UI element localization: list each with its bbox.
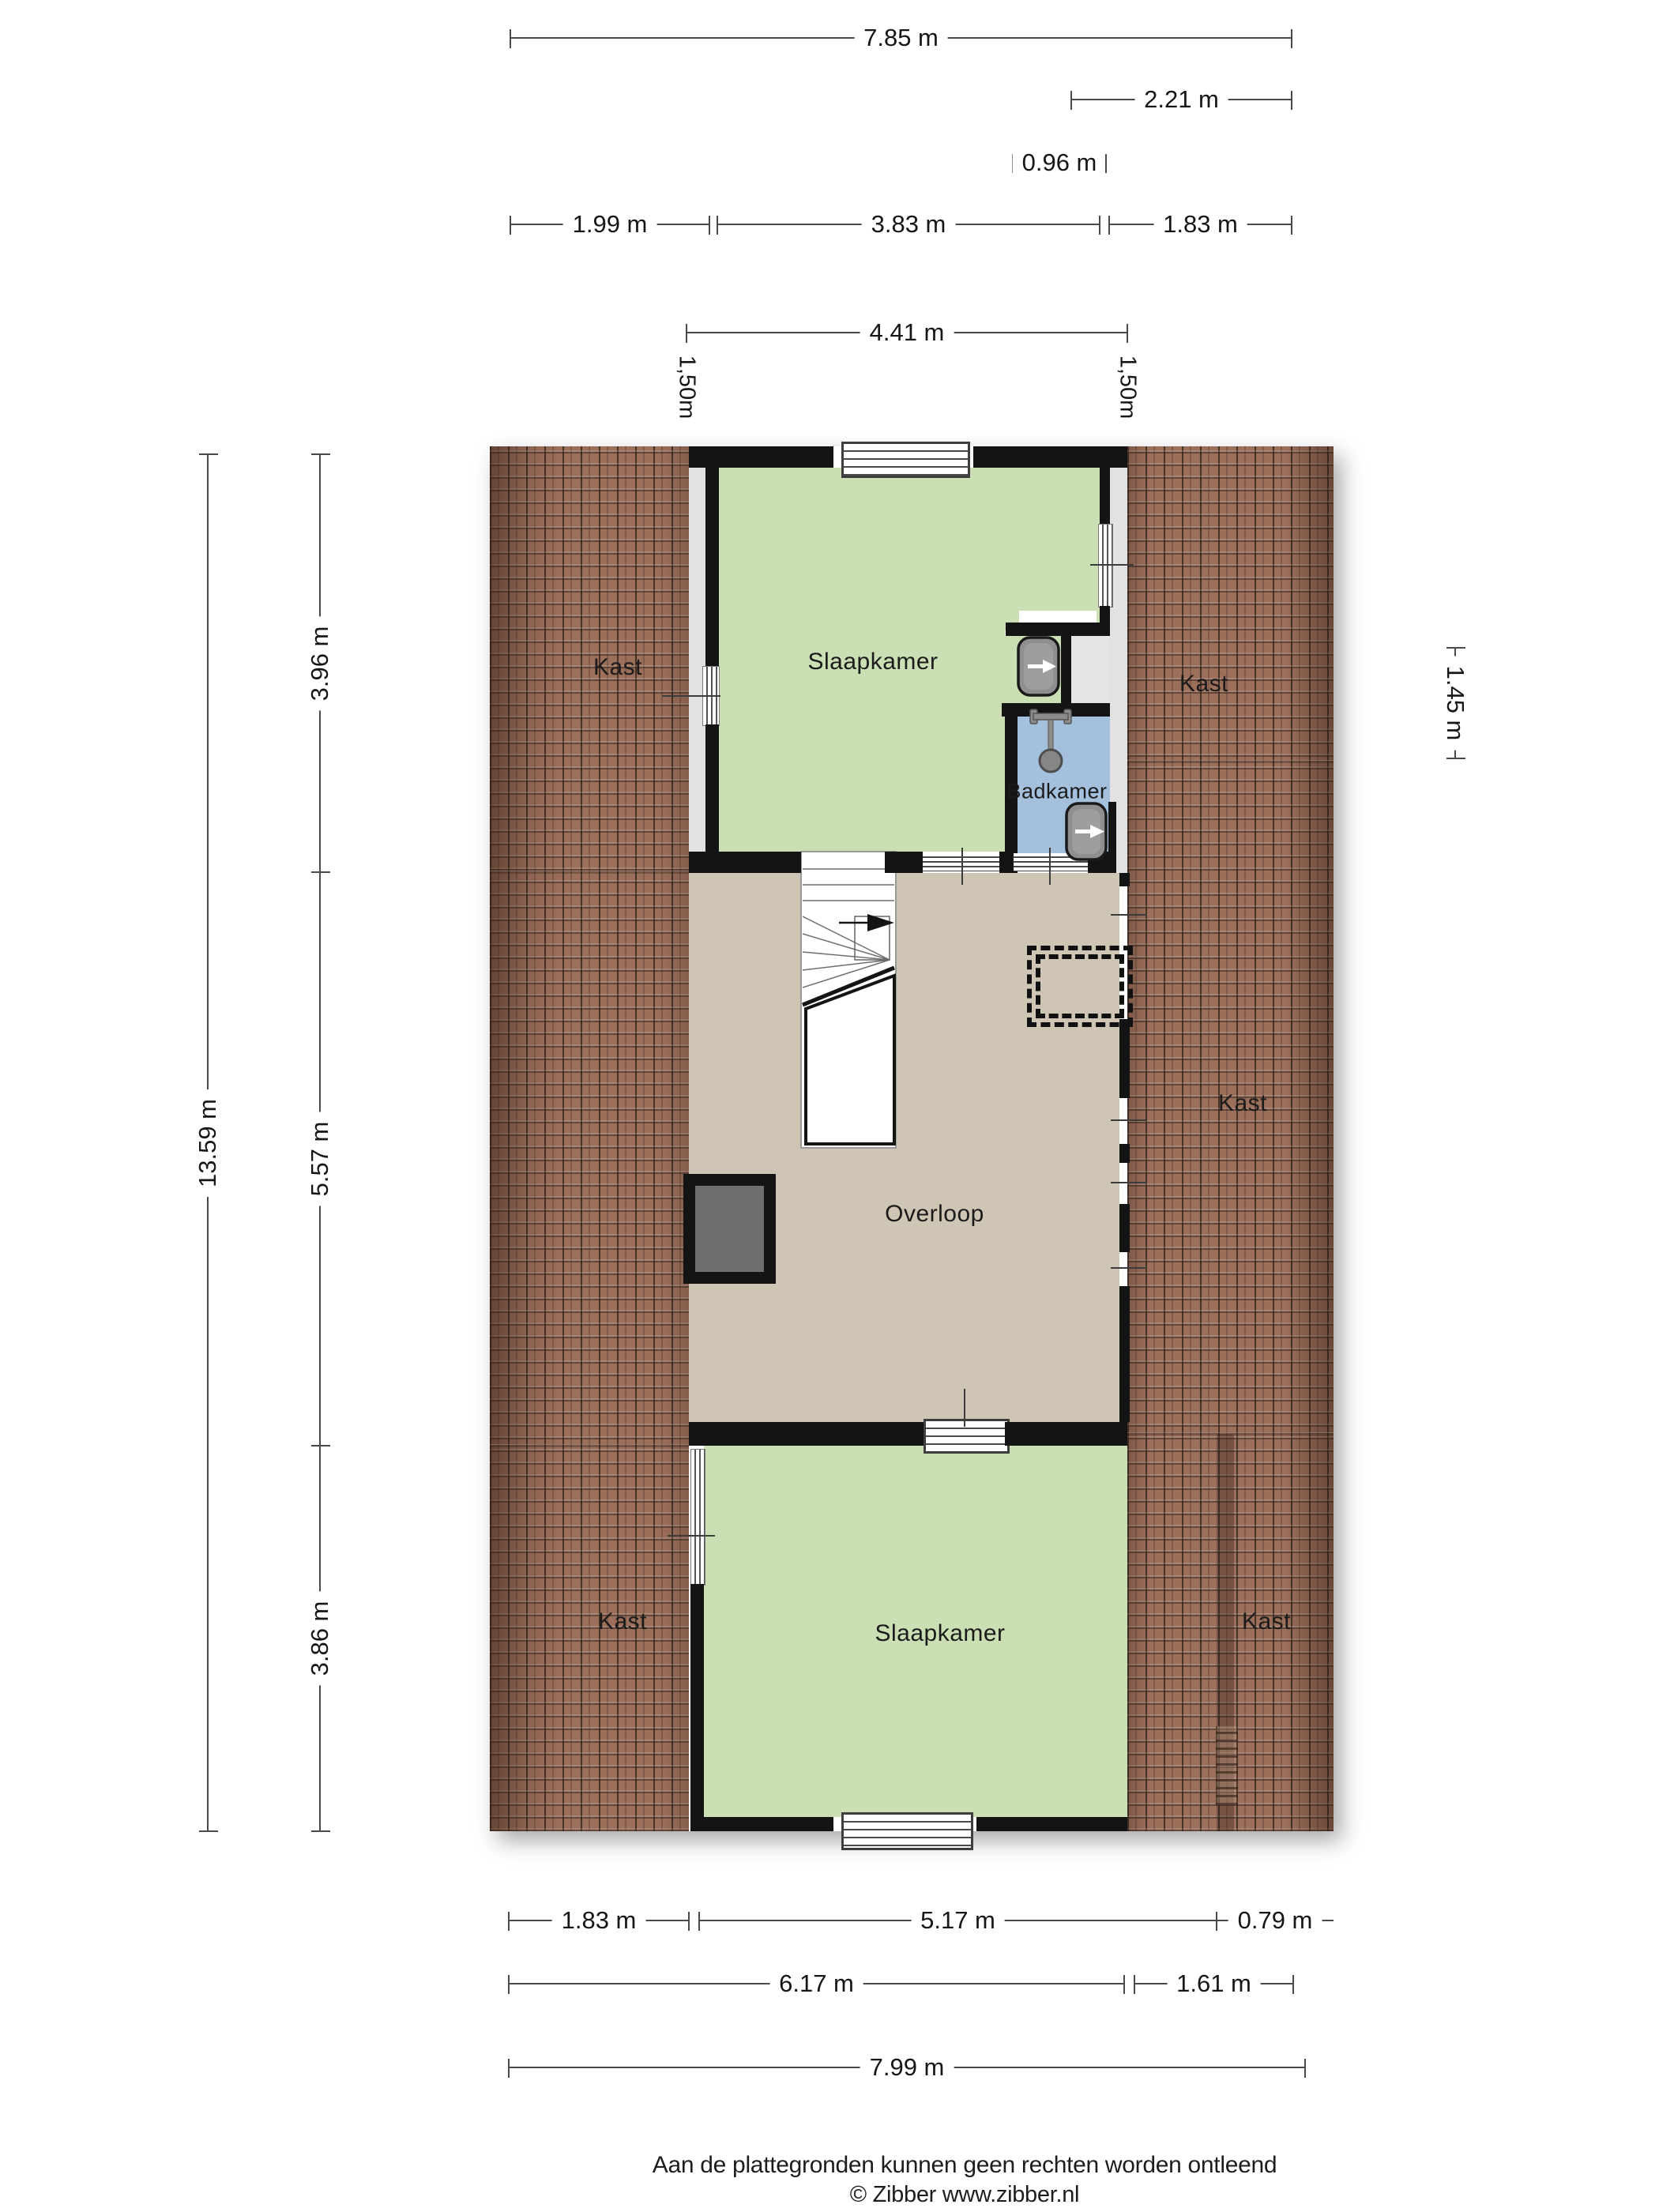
dim-label: 4.41 m bbox=[860, 318, 954, 347]
dim-right-145: 1.45 m bbox=[1454, 648, 1456, 758]
knee-wall-label-left: 1,50m bbox=[674, 355, 700, 419]
dim-label: 1,50m bbox=[675, 355, 700, 419]
wall-alcove-horizontal bbox=[1006, 623, 1110, 636]
footer-disclaimer: Aan de plattegronden kunnen geen rechten… bbox=[653, 2152, 1277, 2179]
dim-label: 6.17 m bbox=[769, 1969, 863, 1998]
dim-label: 0.79 m bbox=[1228, 1906, 1322, 1935]
dim-bottom-517: 5.17 m bbox=[699, 1920, 1217, 1921]
chimney-block bbox=[683, 1174, 776, 1284]
room-label-kast-mid-right: Kast bbox=[1218, 1090, 1267, 1117]
wall-toilet-stub bbox=[1061, 634, 1071, 703]
dim-bottom-183: 1.83 m bbox=[509, 1920, 689, 1921]
dim-label: 13.59 m bbox=[194, 1089, 222, 1196]
opening-tick bbox=[1111, 1267, 1147, 1269]
opening-tick bbox=[1111, 914, 1147, 916]
window-tick bbox=[1090, 564, 1134, 566]
wall-bedroom-top-left-upper bbox=[705, 468, 719, 666]
room-label-kast-top-right: Kast bbox=[1179, 671, 1228, 698]
room-label-kast-bottom-right: Kast bbox=[1242, 1608, 1291, 1635]
footer: Aan de plattegronden kunnen geen rechten… bbox=[653, 2152, 1277, 2208]
dim-bottom-079: 0.79 m bbox=[1217, 1920, 1334, 1921]
wall-bedroom-top-right-upper bbox=[1100, 468, 1110, 524]
window-tick bbox=[662, 695, 720, 697]
dim-top-096: 0.96 m bbox=[1013, 162, 1106, 164]
wall-section-top-2 bbox=[885, 852, 923, 873]
toilet-icon bbox=[1017, 636, 1060, 697]
attic-floor-strip-left bbox=[689, 466, 705, 852]
dim-label: 0.96 m bbox=[1013, 149, 1107, 177]
dim-top-total: 7.85 m bbox=[510, 37, 1292, 39]
dim-label: 2.21 m bbox=[1134, 85, 1228, 114]
dim-label: 1.45 m bbox=[1441, 656, 1469, 750]
dim-bottom-161: 1.61 m bbox=[1134, 1983, 1293, 1984]
wall-overloop-right-5 bbox=[1119, 1286, 1130, 1422]
wall-bedroom-top-left-lower bbox=[705, 724, 719, 852]
roof-window bbox=[1216, 1726, 1238, 1805]
opening-tick bbox=[1111, 1119, 1147, 1121]
dim-left-396: 3.96 m bbox=[319, 454, 321, 872]
dim-top-441: 4.41 m bbox=[687, 332, 1127, 333]
dim-top-383: 3.83 m bbox=[717, 224, 1100, 225]
roof-seam bbox=[490, 871, 689, 874]
dim-top-183: 1.83 m bbox=[1109, 224, 1292, 225]
dim-label: 3.83 m bbox=[862, 210, 956, 239]
toilet-icon bbox=[1064, 802, 1108, 861]
door-tick bbox=[1049, 848, 1051, 885]
footer-credit: © Zibber www.zibber.nl bbox=[653, 2182, 1277, 2208]
dim-label: 1.99 m bbox=[563, 210, 657, 239]
wall-overloop-right-4 bbox=[1119, 1204, 1130, 1252]
wall-overloop-right-2 bbox=[1119, 1019, 1130, 1098]
window-overloop-bottom bbox=[924, 1419, 1010, 1454]
dim-label: 1.83 m bbox=[552, 1906, 646, 1935]
dim-label: 1,50m bbox=[1115, 355, 1141, 419]
room-label-slaapkamer-top: Slaapkamer bbox=[807, 649, 938, 675]
window-bottom bbox=[841, 1812, 973, 1850]
floorplan-drawing: Kast Slaapkamer Kast Badkamer Kast Overl… bbox=[490, 446, 1334, 1831]
roof-seam bbox=[1127, 760, 1334, 763]
alcove-opening bbox=[1019, 611, 1097, 623]
room-label-kast-top-left: Kast bbox=[593, 654, 642, 681]
slaapkamer-top-floor-extension bbox=[1005, 466, 1100, 630]
window-bedroom-bottom-left bbox=[690, 1449, 705, 1586]
dim-label: 7.85 m bbox=[854, 24, 948, 52]
dim-label: 5.57 m bbox=[306, 1112, 334, 1206]
dim-label: 1.61 m bbox=[1167, 1969, 1261, 1998]
room-label-badkamer: Badkamer bbox=[1006, 780, 1107, 804]
closet-nook-floor bbox=[1071, 636, 1110, 703]
wall-section-top-1 bbox=[689, 852, 801, 873]
dim-left-386: 3.86 m bbox=[319, 1446, 321, 1831]
roof-tiles-left bbox=[490, 446, 689, 1831]
opening-tick bbox=[1111, 1182, 1147, 1183]
dim-label: 3.96 m bbox=[306, 616, 334, 710]
dim-left-557: 5.57 m bbox=[319, 872, 321, 1446]
floorplan-page: 7.85 m 2.21 m 0.96 m 1.99 m 3.83 m 1.83 … bbox=[0, 0, 1659, 2212]
dim-top-199: 1.99 m bbox=[510, 224, 709, 225]
shower-tap-icon bbox=[1027, 707, 1078, 778]
dim-left-total: 13.59 m bbox=[207, 454, 209, 1831]
room-label-kast-bottom-left: Kast bbox=[598, 1608, 647, 1635]
knee-wall-label-right: 1,50m bbox=[1115, 355, 1141, 419]
room-label-overloop: Overloop bbox=[885, 1201, 984, 1228]
wall-section-bottom-1 bbox=[689, 1422, 924, 1446]
dim-label: 3.86 m bbox=[306, 1592, 334, 1686]
wall-section-top-3 bbox=[999, 852, 1014, 873]
wall-overloop-right-3 bbox=[1119, 1144, 1130, 1163]
window-top bbox=[841, 442, 970, 478]
window-tick bbox=[964, 1389, 965, 1427]
dim-label: 5.17 m bbox=[911, 1906, 1005, 1935]
roof-seam bbox=[490, 1444, 689, 1447]
dim-bottom-617: 6.17 m bbox=[509, 1983, 1124, 1984]
window-tick bbox=[668, 1535, 715, 1537]
wall-section-bottom-2 bbox=[1005, 1422, 1127, 1446]
dashed-provision-box-inner bbox=[1036, 954, 1124, 1018]
dim-label: 1.83 m bbox=[1153, 210, 1247, 239]
wall-bedroom-bottom-left bbox=[690, 1584, 704, 1817]
wall-bedroom-top-right-lower bbox=[1100, 606, 1110, 623]
dim-label: 7.99 m bbox=[860, 2053, 954, 2082]
dim-bottom-total: 7.99 m bbox=[509, 2067, 1305, 2068]
dashed-provision-box bbox=[1027, 946, 1133, 1027]
window-bedroom-top-right bbox=[1098, 524, 1113, 608]
wall-overloop-right-1 bbox=[1119, 873, 1130, 886]
window-tick bbox=[961, 848, 963, 885]
dim-top-221: 2.21 m bbox=[1071, 99, 1292, 100]
staircase bbox=[797, 849, 900, 1157]
room-label-slaapkamer-bottom: Slaapkamer bbox=[875, 1620, 1005, 1647]
